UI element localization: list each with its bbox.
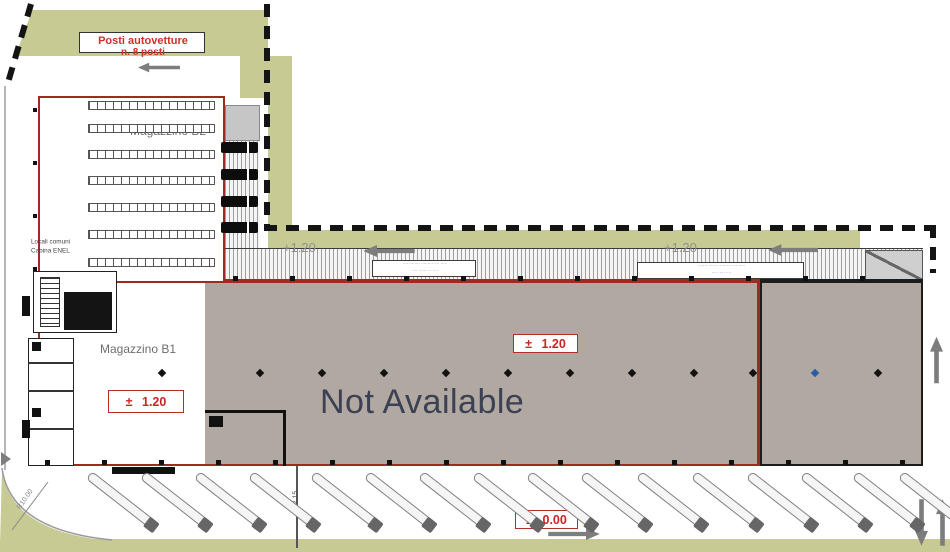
boundary-dashed-vertical bbox=[264, 4, 270, 228]
wall-column-dot bbox=[689, 276, 694, 281]
warehouse-b1-label: Magazzino B1 bbox=[100, 342, 176, 356]
canopy-note-left-line1: ···· ········ ········· ···· ····· bbox=[399, 262, 451, 266]
wall-column-dot bbox=[387, 460, 392, 465]
wall-column-dot bbox=[746, 276, 751, 281]
wall-column-dot bbox=[233, 276, 238, 281]
site-plan: Posti autovetture n. 8 posti Magazzino B… bbox=[0, 0, 950, 552]
room-divider bbox=[28, 362, 74, 364]
truck-cab bbox=[305, 516, 322, 533]
canopy-note-right: ······· ········ ········· ········· ···… bbox=[637, 262, 804, 279]
wall-column-dot bbox=[444, 460, 449, 465]
truck-cab bbox=[421, 516, 438, 533]
wall-column-dot bbox=[404, 276, 409, 281]
access-ramp bbox=[865, 250, 923, 281]
wall-tab bbox=[22, 296, 30, 316]
wall-column-dot bbox=[843, 460, 848, 465]
boundary-chevron bbox=[1, 452, 11, 466]
parking-label: Posti autovetture bbox=[80, 35, 206, 47]
truck-cab bbox=[251, 516, 268, 533]
wall-column-dot bbox=[45, 460, 50, 465]
canopy-note-right-line2: ···· ····· ···· bbox=[680, 271, 764, 275]
dock-upper-block bbox=[225, 105, 260, 141]
docked-truck bbox=[221, 169, 258, 180]
elevation-box-hall: ± 1.20 bbox=[513, 334, 578, 353]
truck-cab bbox=[143, 516, 160, 533]
site-edge-line bbox=[4, 86, 6, 470]
boundary-dashed-right bbox=[930, 225, 936, 273]
wall-column-dot bbox=[33, 108, 37, 112]
storage-rack-row bbox=[88, 176, 215, 185]
docked-truck bbox=[221, 142, 258, 153]
truck-cab bbox=[803, 516, 820, 533]
canopy-note-right-line1: ······· ········ ········· ········· bbox=[680, 264, 764, 268]
boundary-dashed-diagonal bbox=[0, 0, 40, 92]
landscaping-strip-vertical bbox=[268, 56, 292, 232]
wall-column-dot bbox=[33, 267, 37, 271]
red-divider-wall bbox=[757, 281, 760, 466]
enel-cabin-room bbox=[64, 292, 112, 330]
landscaping-strip-bottom bbox=[0, 539, 950, 552]
storage-rack-row bbox=[88, 230, 215, 239]
interior-fence-line bbox=[205, 410, 285, 413]
wall-column-dot bbox=[558, 460, 563, 465]
truck-cab bbox=[367, 516, 384, 533]
boundary-dashed-horizontal bbox=[264, 225, 936, 231]
wall-column-dot bbox=[632, 276, 637, 281]
storage-rack-row bbox=[88, 101, 215, 110]
room-divider bbox=[28, 390, 74, 392]
loading-canopy-hatched bbox=[225, 248, 923, 281]
level-label-left: +1.20 bbox=[283, 240, 316, 255]
wall-column-dot bbox=[216, 460, 221, 465]
docked-truck bbox=[221, 222, 258, 233]
truck-cab bbox=[693, 516, 710, 533]
elevation-box-b1: ± 1.20 bbox=[108, 390, 184, 413]
right-section bbox=[760, 281, 923, 466]
staircase bbox=[40, 277, 60, 327]
interior-equipment bbox=[209, 416, 223, 427]
service-rooms-block bbox=[28, 338, 74, 466]
interior-fence-line bbox=[283, 410, 286, 466]
wall-column-dot bbox=[159, 460, 164, 465]
radius-leader-line bbox=[8, 478, 52, 534]
wall-column-dot bbox=[501, 460, 506, 465]
truck-cab bbox=[637, 516, 654, 533]
truck-cab bbox=[197, 516, 214, 533]
wall-column-dot bbox=[860, 276, 865, 281]
wall-column-dot bbox=[518, 276, 523, 281]
wall-tab bbox=[32, 342, 41, 351]
wall-column-dot bbox=[33, 161, 37, 165]
storage-rack-row bbox=[88, 150, 215, 159]
flow-arrow-up-right-mid bbox=[930, 336, 943, 384]
wall-column-dot bbox=[786, 460, 791, 465]
flow-arrow-left-canopy-2 bbox=[768, 244, 818, 256]
truck-cab bbox=[857, 516, 874, 533]
docked-truck bbox=[221, 196, 258, 207]
wall-column-dot bbox=[615, 460, 620, 465]
storage-rack-row bbox=[88, 258, 215, 267]
flow-arrow-left-parking bbox=[138, 62, 180, 73]
wall-column-dot bbox=[803, 276, 808, 281]
wall-column-dot bbox=[900, 460, 905, 465]
technical-rooms-label-1: Locali comuni bbox=[31, 238, 70, 245]
wall-column-dot bbox=[273, 460, 278, 465]
parking-count-label: n. 8 posti bbox=[80, 47, 206, 58]
wall-tab bbox=[32, 408, 41, 417]
wall-column-dot bbox=[102, 460, 107, 465]
canopy-note-left-line2: ···· ······· ·· ···· bbox=[399, 269, 451, 273]
technical-rooms-label-2: Cabina ENEL bbox=[31, 247, 70, 254]
storage-rack-row bbox=[88, 203, 215, 212]
canopy-note-left: ···· ········ ········· ···· ····· ···· … bbox=[372, 260, 476, 277]
wall-column-dot bbox=[729, 460, 734, 465]
wall-column-dot bbox=[575, 276, 580, 281]
not-available-hall bbox=[205, 283, 758, 464]
not-available-label: Not Available bbox=[320, 383, 524, 422]
level-label-right: +1.20 bbox=[664, 240, 697, 255]
wall-column-dot bbox=[347, 276, 352, 281]
wall-column-dot bbox=[33, 214, 37, 218]
wall-tab bbox=[22, 420, 30, 438]
storage-rack-row bbox=[88, 124, 215, 133]
flow-arrow-left-canopy-1 bbox=[363, 245, 415, 257]
truck-cab bbox=[748, 516, 765, 533]
wall-column-dot bbox=[290, 276, 295, 281]
room-divider bbox=[28, 428, 74, 430]
truck-cab bbox=[475, 516, 492, 533]
wall-column-dot bbox=[672, 460, 677, 465]
wall-column-dot bbox=[330, 460, 335, 465]
wall-column-dot bbox=[461, 276, 466, 281]
